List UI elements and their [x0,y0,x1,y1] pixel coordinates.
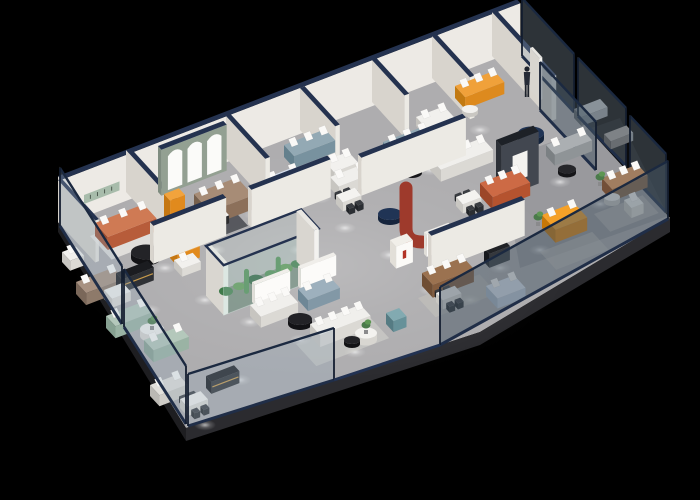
side-table-1 [462,105,478,117]
floorplan-canvas [0,0,700,500]
showroom-floorplan-render [0,0,700,500]
logo-display [390,234,413,269]
coffee-table-4 [288,313,312,330]
coffee-table-5 [344,336,360,348]
coffee-table-3 [558,165,576,178]
round-table-navy-2 [378,208,402,225]
page: { "meta": { "description": "3D isometric… [0,0,700,500]
